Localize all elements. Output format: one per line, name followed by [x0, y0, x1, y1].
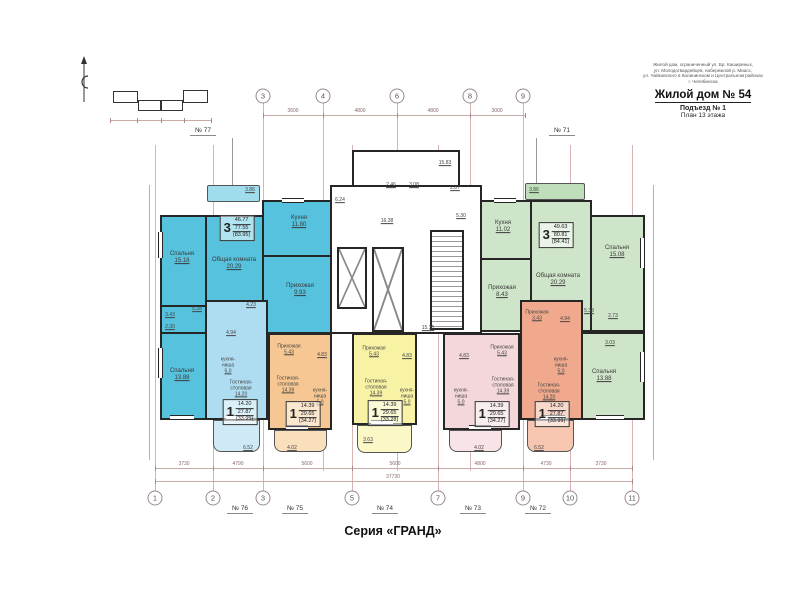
small-area: 3.43 — [165, 313, 175, 319]
unit-number-77: № 77 — [190, 127, 216, 136]
balcony-area: 6.52 — [243, 446, 253, 452]
room-label: Прихожая5.43 — [490, 345, 513, 357]
full-area: (83.95) — [233, 232, 250, 239]
series-title: Серия «ГРАНД» — [344, 524, 441, 538]
dimension: 4800 — [354, 108, 365, 114]
room-label: Гостиная-столовая14.20 — [538, 383, 561, 400]
core-area: 5.30 — [456, 214, 466, 220]
floor-plan-sheet: Жилой дом, ограниченный ул. Бр. Каширины… — [0, 0, 800, 600]
core-area: 6.24 — [335, 198, 345, 204]
room-label: Гостиная-столовая14.39 — [365, 379, 388, 396]
small-area: 2.73 — [608, 314, 618, 320]
room-count: 3 — [224, 221, 231, 236]
axis-bubble-bottom: 7 — [431, 491, 446, 506]
living-area: 46.77 — [233, 217, 250, 225]
axis-bubble-top: 8 — [463, 89, 478, 104]
small-area: 3.03 — [605, 341, 615, 347]
core-area: 16.38 — [381, 219, 394, 225]
dimension: 3730 — [595, 461, 606, 467]
room-label: кухня-ниша5,0 — [454, 388, 468, 405]
room-label: Спальня15.18 — [170, 251, 194, 265]
sheet-title: Жилой дом № 54 — [655, 89, 752, 103]
apartment-label: 1 14.20 27.87 (33.99) — [535, 401, 570, 427]
apartment-label: 3 49.63 80.81 (84.41) — [539, 222, 574, 248]
address-lines: Жилой дом, ограниченный ул. Бр. Каширины… — [612, 62, 794, 85]
balcony-area: 4.02 — [287, 446, 297, 452]
small-area: 5.38 — [584, 309, 594, 315]
apartment-label: 3 46.77 77.55 (83.95) — [220, 215, 255, 241]
room-label: Общая комната20.29 — [212, 257, 256, 271]
full-area: (84.41) — [552, 239, 569, 246]
axis-bubble-top: 4 — [316, 89, 331, 104]
elevator-shaft — [337, 247, 367, 309]
key-plan-block — [161, 100, 183, 111]
small-area: 4.83 — [317, 353, 327, 359]
axis-bubble-bottom: 1 — [148, 491, 163, 506]
apartment-label: 1 14.39 29.65 (34.27) — [286, 401, 321, 427]
dimension: 5600 — [389, 461, 400, 467]
room-label: Прихожая5.43 — [277, 344, 300, 356]
balcony — [274, 430, 327, 452]
axis-bubble-bottom: 2 — [206, 491, 221, 506]
balcony-area: 3.63 — [363, 438, 373, 444]
room-label: Спальня13.88 — [170, 368, 194, 382]
unit-number-76: № 76 — [227, 505, 253, 514]
room-label: Спальня15.08 — [605, 245, 629, 259]
room-count: 1 — [479, 407, 486, 422]
key-plan-block — [113, 91, 138, 103]
dimension: 4800 — [474, 461, 485, 467]
room-label: Спальня13.88 — [592, 369, 616, 383]
axis-bubble-bottom: 11 — [625, 491, 640, 506]
room-count: 1 — [227, 405, 234, 420]
axis-bubble-bottom: 10 — [563, 491, 578, 506]
axis-bubble-top: 3 — [256, 89, 271, 104]
title-block: Жилой дом, ограниченный ул. Бр. Каширины… — [612, 62, 794, 119]
elevator-shaft — [372, 247, 404, 332]
core-area: 2.87 — [450, 186, 460, 192]
axis-bubble-bottom: 3 — [256, 491, 271, 506]
floor-label: План 13 этажа — [612, 112, 794, 119]
room-label: Прихожая3.43 — [525, 310, 548, 322]
dimension: 4730 — [540, 461, 551, 467]
balcony-area: 3.86 — [529, 188, 539, 194]
living-area: 49.63 — [552, 224, 569, 232]
room-count: 1 — [539, 407, 546, 422]
north-arrow-icon — [76, 56, 92, 108]
axis-bubble-top: 9 — [516, 89, 531, 104]
core-area: 2.46 — [386, 183, 396, 189]
unit-number-71: № 71 — [549, 127, 575, 136]
total-area: 77.55 — [233, 225, 250, 233]
staircase — [430, 230, 464, 330]
room-count: 1 — [372, 406, 379, 421]
balcony-area: 4.02 — [474, 446, 484, 452]
dimension: 3600 — [287, 108, 298, 114]
apartment-label: 1 14.39 29.65 (33.28) — [368, 400, 403, 426]
room-label: кухня-ниша5,0 — [554, 357, 568, 374]
total-area: 80.81 — [552, 232, 569, 240]
room-label: кухня-ниша5,0 — [221, 357, 235, 374]
room-label: Прихожая9.93 — [286, 283, 314, 297]
small-area: 4.83 — [402, 354, 412, 360]
unit-number-74: № 74 — [372, 505, 398, 514]
axis-bubble-top: 6 — [390, 89, 405, 104]
dimension: 5600 — [301, 461, 312, 467]
core-area: 15.35 — [422, 326, 435, 332]
core-area: 3.08 — [409, 183, 419, 189]
room-label: Прихожая8.43 — [488, 285, 516, 299]
apartment-label: 1 14.39 29.65 (34.27) — [475, 401, 510, 427]
small-area: 4.23 — [246, 303, 256, 309]
room-label: Кухня11.80 — [291, 215, 307, 229]
key-plan-block — [138, 100, 161, 111]
balcony-area: 6.52 — [534, 446, 544, 452]
room-count: 3 — [543, 228, 550, 243]
room-label: Кухня11.02 — [495, 220, 511, 234]
dimension: 3000 — [491, 108, 502, 114]
dimension-total: 37730 — [386, 474, 400, 480]
room-label: Гостиная-столовая14.39 — [492, 377, 515, 394]
key-plan-block — [183, 90, 208, 103]
unit-number-75: № 75 — [282, 505, 308, 514]
dimension: 3730 — [178, 461, 189, 467]
entrance-label: Подъезд № 1 — [612, 105, 794, 112]
apartment-label: 1 14.20 27.87 (33.95) — [223, 399, 258, 425]
unit-number-72: № 72 — [525, 505, 551, 514]
small-area: 5.28 — [192, 307, 202, 313]
room-label: Гостиная-столовая14.20 — [230, 380, 253, 397]
axis-bubble-bottom: 5 — [345, 491, 360, 506]
room-label: Гостиная-столовая14.39 — [277, 376, 300, 393]
small-area: 2.30 — [165, 325, 175, 331]
axis-bubble-bottom: 9 — [516, 491, 531, 506]
room-label: Общая комната20.29 — [536, 273, 580, 287]
dimension: 4800 — [427, 108, 438, 114]
core-area: 15.83 — [439, 161, 452, 167]
room-count: 1 — [290, 407, 297, 422]
entrance-bay — [352, 150, 460, 187]
small-area: 4.94 — [226, 331, 236, 337]
unit-number-73: № 73 — [460, 505, 486, 514]
dimension: 4790 — [232, 461, 243, 467]
balcony-area: 3.86 — [245, 188, 255, 194]
small-area: 4.94 — [560, 317, 570, 323]
room-label: Прихожая5.43 — [362, 346, 385, 358]
small-area: 4.83 — [459, 354, 469, 360]
